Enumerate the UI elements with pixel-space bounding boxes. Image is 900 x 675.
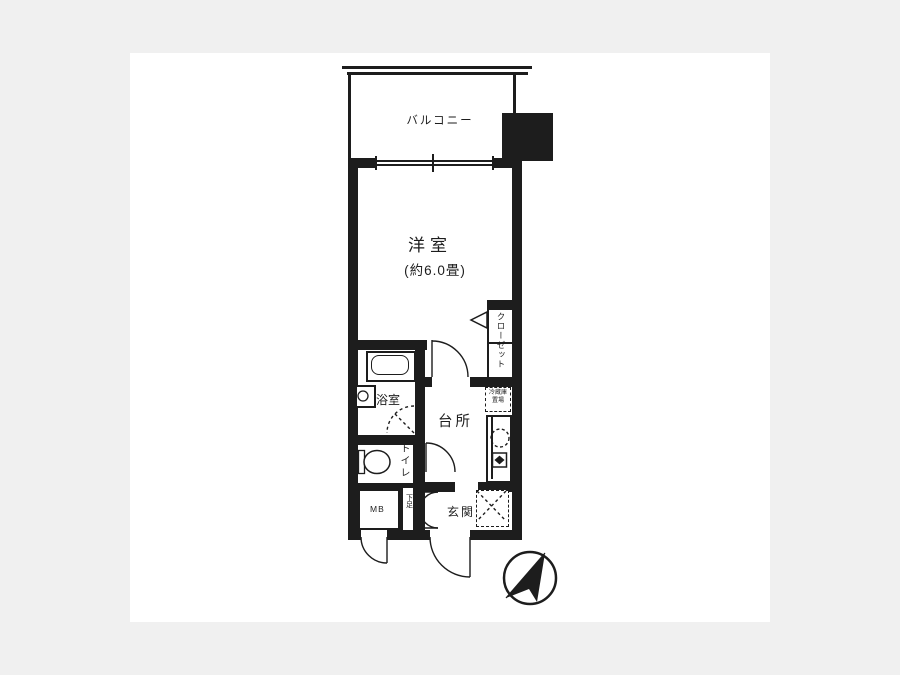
window-end-tick-right bbox=[492, 156, 494, 170]
bathroom-right-wall bbox=[415, 340, 425, 445]
pillar bbox=[502, 113, 553, 161]
toilet-label: トイレ bbox=[396, 443, 411, 479]
window-sash-upper bbox=[375, 160, 494, 162]
shoe-box-label: 下足 bbox=[404, 494, 414, 508]
closet-bottom-wall bbox=[470, 377, 512, 387]
balcony-label: バルコニー bbox=[380, 112, 500, 128]
closet-label: クローゼット bbox=[495, 312, 507, 369]
meter-box-label: MB bbox=[370, 504, 385, 514]
window-end-tick-left bbox=[375, 156, 377, 170]
balcony-wall-right bbox=[513, 74, 516, 115]
bath-sink bbox=[355, 385, 376, 408]
bathroom-label: 浴室 bbox=[376, 391, 400, 408]
closet-top-wall bbox=[487, 300, 522, 310]
window-center-tick bbox=[432, 154, 434, 172]
balcony-rail-inner bbox=[347, 72, 528, 75]
balcony-rail-outer bbox=[342, 66, 532, 69]
window-sash-lower bbox=[375, 164, 494, 166]
window-opening bbox=[376, 157, 493, 169]
closet-left-line bbox=[487, 310, 489, 377]
balcony-wall-left bbox=[348, 74, 351, 159]
main-room-label: 洋室 bbox=[350, 231, 510, 256]
hall-wall-vertical bbox=[413, 435, 425, 540]
fridge-label-line1: 冷蔵庫 bbox=[486, 390, 510, 397]
kitchen-top-wall-left bbox=[415, 377, 432, 387]
bottom-wall-a bbox=[348, 530, 361, 540]
fridge-label-line2: 置場 bbox=[486, 398, 510, 405]
fridge-space: 冷蔵庫 置場 bbox=[485, 387, 511, 412]
bottom-wall-c bbox=[470, 530, 522, 540]
bathtub-inner bbox=[371, 355, 409, 375]
right-wall bbox=[512, 158, 522, 540]
kitchen-counter-edge bbox=[491, 417, 493, 479]
main-room-size: (約6.0畳) bbox=[350, 259, 520, 279]
kitchen-counter bbox=[486, 415, 512, 483]
entrance-label: 玄関 bbox=[447, 503, 475, 520]
entrance-hatch-area bbox=[476, 490, 509, 527]
floorplan-card: バルコニー 洋室 (約6.0畳) クローゼット 浴室 トイレ MB 下足 台所 … bbox=[130, 53, 770, 622]
entrance-wall-left bbox=[425, 482, 455, 492]
kitchen-label: 台所 bbox=[438, 410, 473, 431]
